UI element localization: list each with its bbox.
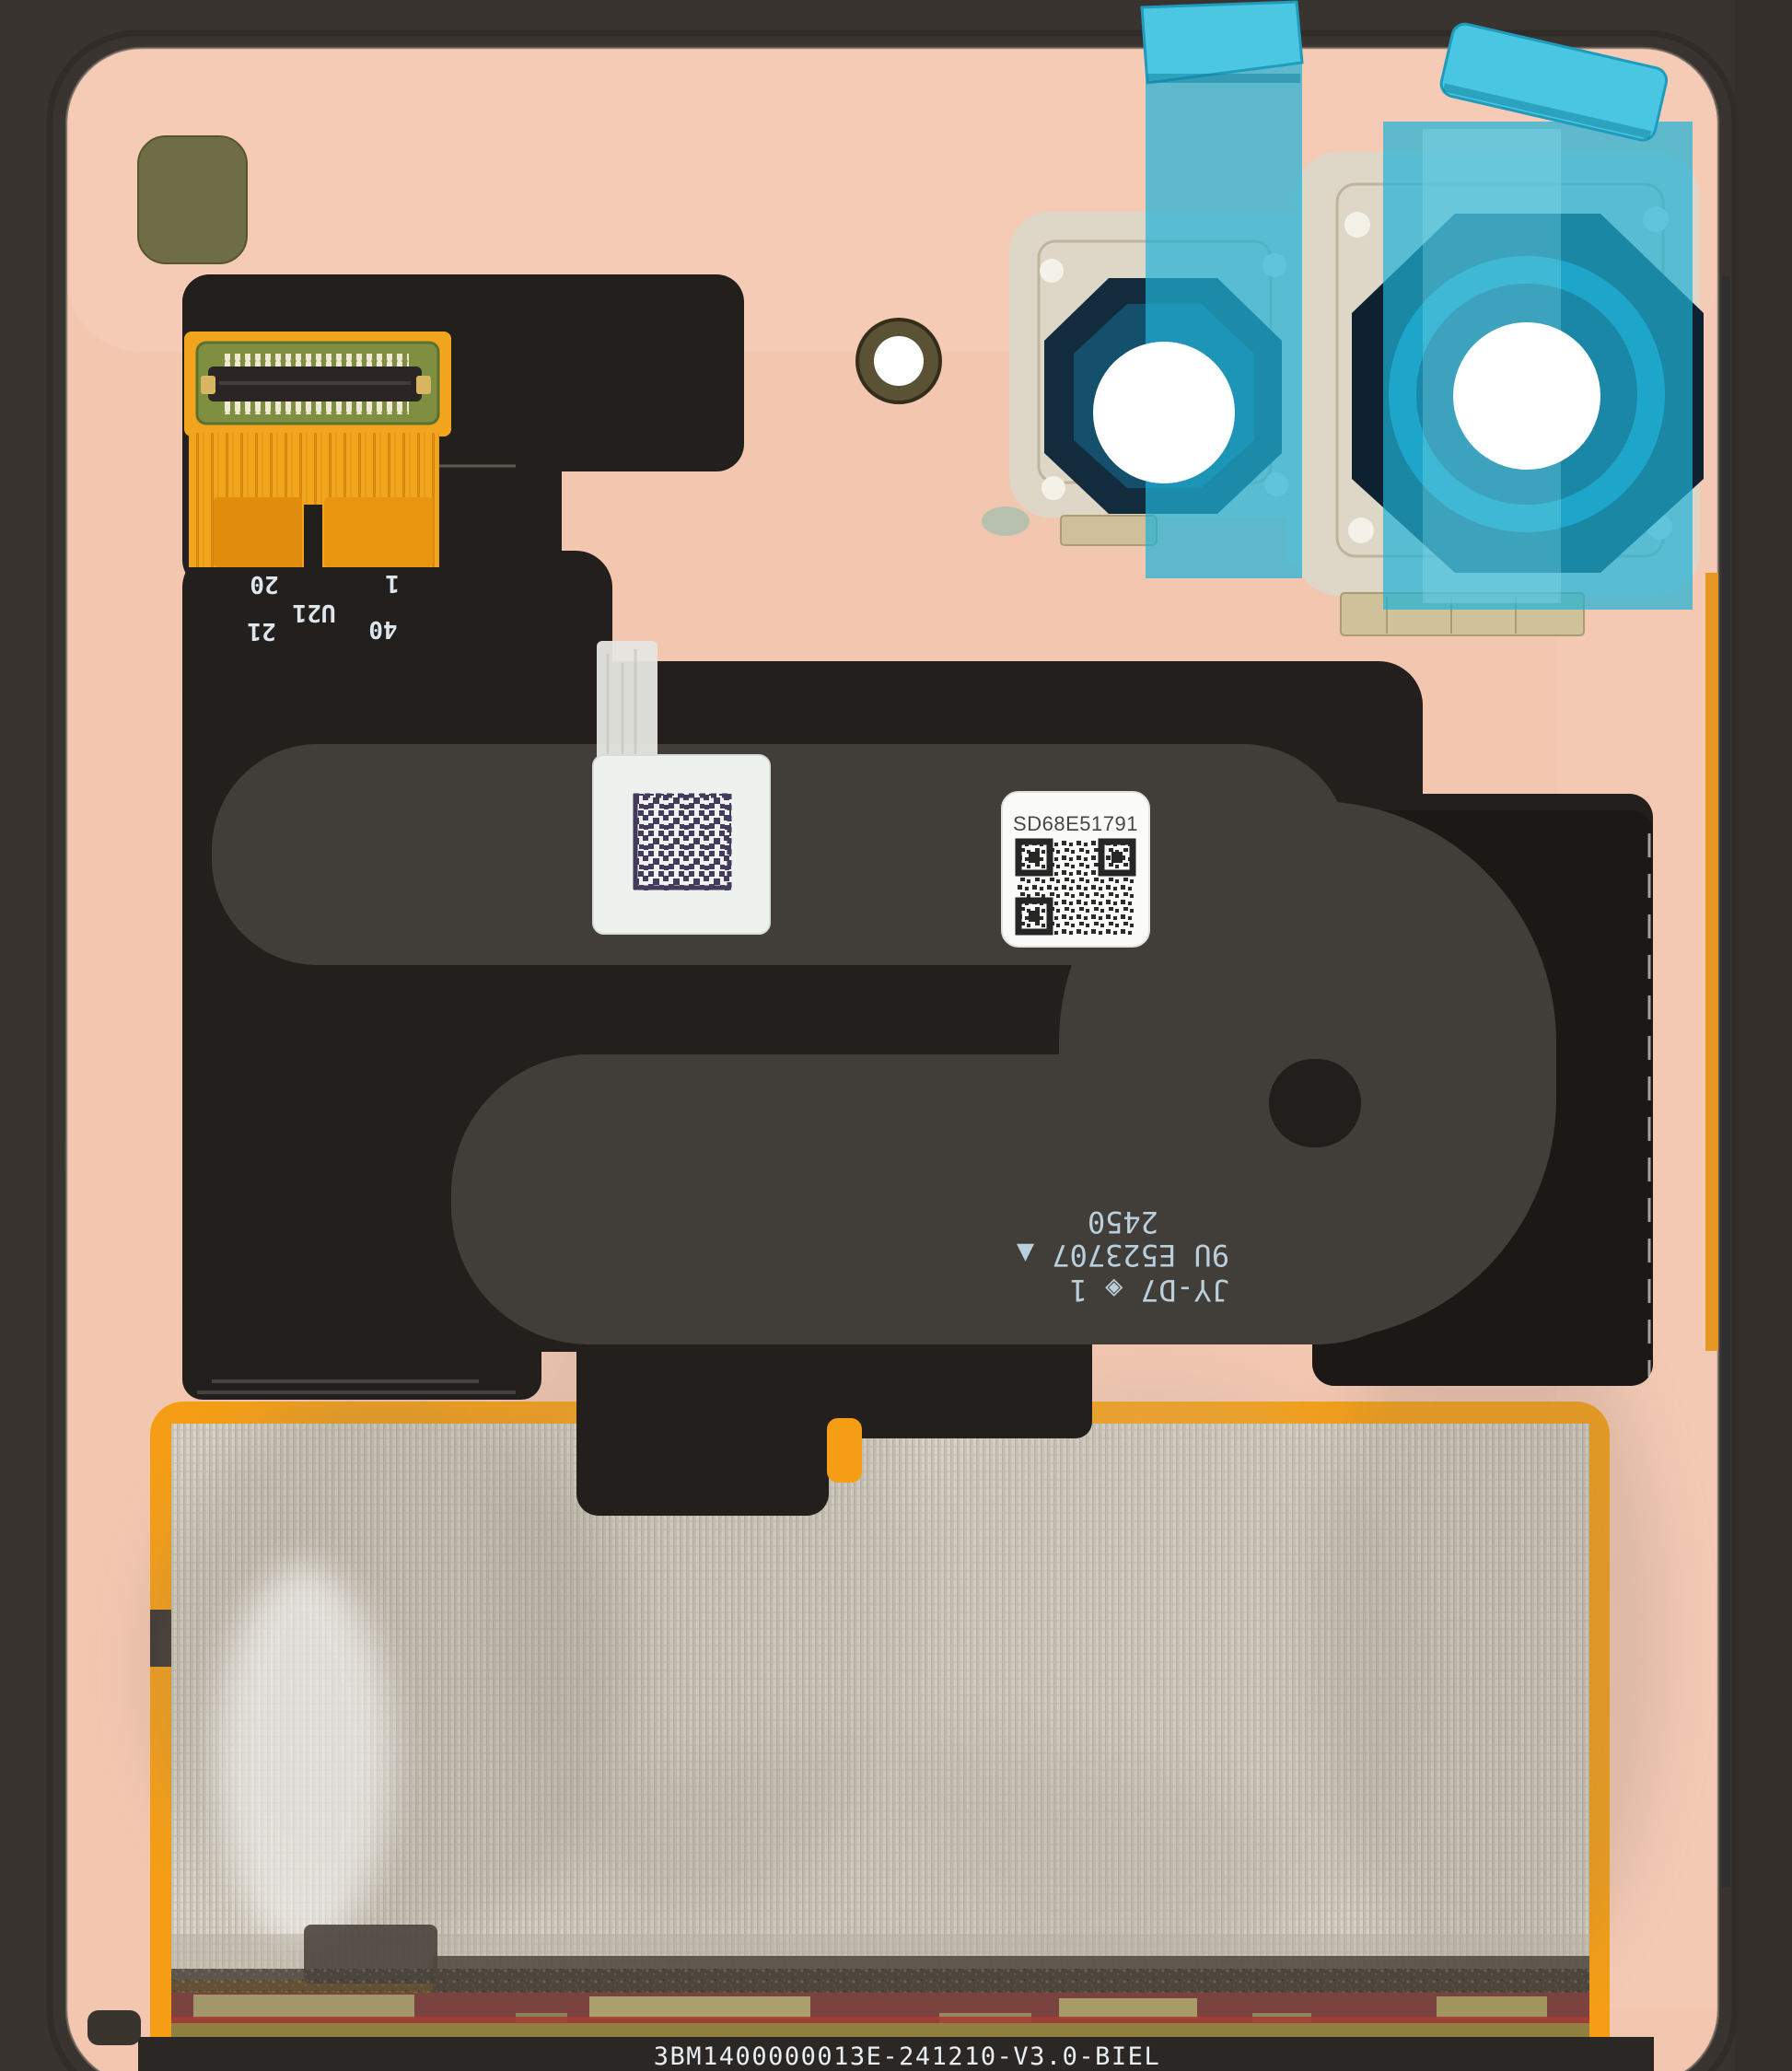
flex-marking-line1: JY-D7 ◈ 1 — [1070, 1273, 1229, 1308]
side-flex-sliver — [1705, 573, 1718, 1351]
datamatrix-label — [593, 755, 770, 934]
connector-end-cap — [416, 376, 431, 394]
pin-row-top — [221, 354, 409, 366]
datamatrix-code — [634, 794, 731, 891]
connector-slot — [219, 381, 411, 385]
lens-opening-large — [1453, 322, 1600, 470]
pin-label-designator: U21 — [293, 599, 336, 626]
flex-tab-notch — [827, 1418, 862, 1483]
pin-label-20: 20 — [250, 570, 278, 598]
speckle-band — [171, 1969, 1589, 1996]
pin-label-21: 21 — [247, 617, 275, 645]
film-strip-left-layer — [1146, 53, 1302, 578]
ribbon-coil-gap — [1269, 1059, 1361, 1147]
connector-end-cap — [201, 376, 215, 394]
flex-marking-line3: 2450 — [1088, 1204, 1158, 1239]
serial-text: SD68E51791 — [1013, 812, 1138, 835]
product-photo-phone-back-panel: 3BM1400000013E-241210-V3.0-BIEL — [0, 0, 1792, 2071]
pin-label-40: 40 — [368, 615, 397, 643]
frame-right-band — [1735, 0, 1792, 2071]
adhesive-pad-top-left — [138, 136, 247, 263]
microphone-hole — [857, 320, 940, 402]
lens-opening-small — [1093, 342, 1235, 483]
panel-corner-notch — [87, 2010, 141, 2045]
serial-label: SD68E51791 — [1002, 792, 1149, 947]
brass-band — [171, 2023, 1589, 2038]
part-code-text: 3BM1400000013E-241210-V3.0-BIEL — [654, 2042, 1160, 2071]
frame-right-line — [1722, 276, 1730, 1888]
foil-highlight — [216, 1565, 391, 1952]
flex-connector-assembly — [184, 332, 451, 567]
flex-marking-line2: 9U E523707 ▲ — [1016, 1238, 1229, 1273]
solder-dot — [982, 506, 1030, 536]
film-fold-shadow — [1147, 74, 1300, 83]
back-panel-photo: 3BM1400000013E-241210-V3.0-BIEL — [0, 0, 1792, 2071]
pin-row-bottom — [221, 401, 409, 414]
pin-label-1: 1 — [385, 569, 400, 597]
bracket-gold-tab — [1061, 516, 1157, 545]
